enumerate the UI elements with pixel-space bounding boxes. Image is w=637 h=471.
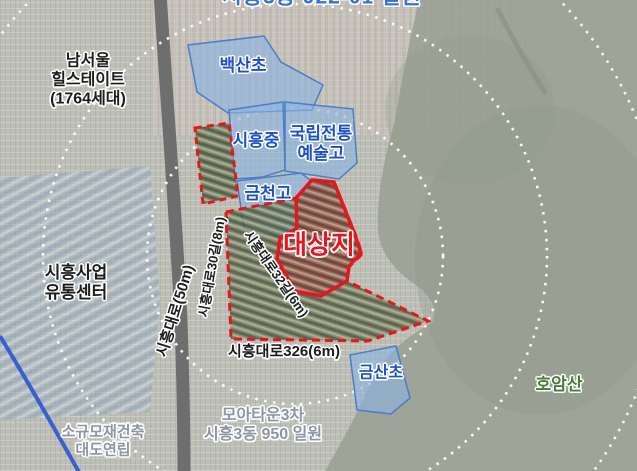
- school-area-arts-high: [285, 102, 357, 179]
- siheung-daero-road: [160, 0, 184, 471]
- distribution-center-area: [0, 166, 160, 420]
- school-area-siheung-middle: [229, 102, 285, 179]
- map-overlay-graphics: [0, 0, 637, 471]
- site-location-map: 시흥3동 922-01 일원 남서울 힐스테이트 (1764세대) 백산초 시흥…: [0, 0, 637, 471]
- school-area-baeksan: [188, 36, 323, 113]
